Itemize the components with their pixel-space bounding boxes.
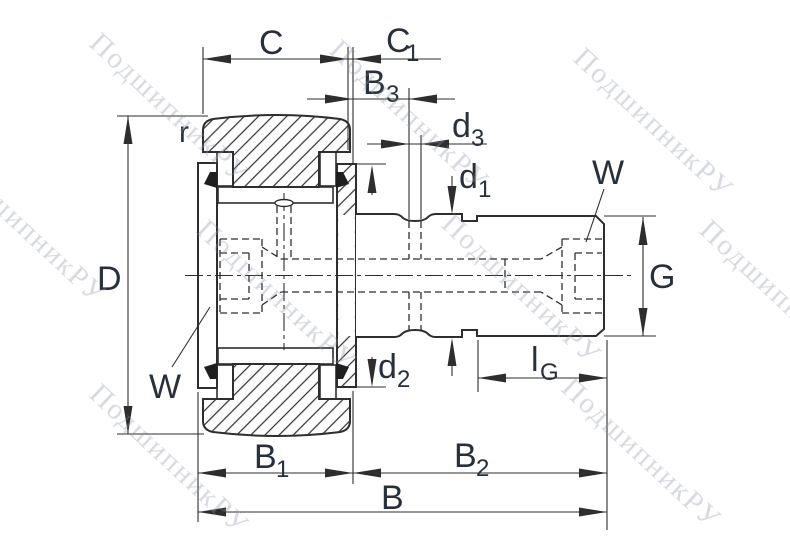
arrowhead <box>478 374 506 383</box>
outer-ring-bottom <box>203 364 350 436</box>
dim-label-g: G <box>649 258 675 296</box>
watermark-text: ПодшипникРУ <box>83 27 255 191</box>
arrowhead <box>639 308 648 336</box>
dim-label-d2: d <box>378 348 397 386</box>
needle-rollers-top <box>218 187 333 203</box>
arrowhead <box>381 140 409 149</box>
watermark-text: ПодшипникРУ <box>693 214 790 378</box>
dim-label-c: C <box>259 24 284 62</box>
dim-label-b1-sub: 1 <box>276 456 289 483</box>
arrowhead <box>639 217 648 245</box>
arrowhead <box>368 165 377 193</box>
lube-hole-opening <box>275 200 293 207</box>
seal-top-right <box>320 152 336 186</box>
arrowhead <box>325 469 353 478</box>
arrowhead <box>579 508 607 517</box>
dim-label-b2: B <box>454 437 477 475</box>
dim-label-b1: B <box>254 438 277 476</box>
dim-label-w-right: W <box>592 154 624 192</box>
bearing-technical-drawing: C C 1 B 3 d 3 d 1 W G l G d 2 D W r B 1 … <box>0 0 790 547</box>
dim-label-b: B <box>381 479 404 517</box>
dim-label-c1-sub: 1 <box>406 40 419 67</box>
arrowhead <box>203 55 231 64</box>
arrowhead <box>325 95 353 104</box>
arrowhead <box>124 116 133 144</box>
drawing-canvas: C C 1 B 3 d 3 d 1 W G l G d 2 D W r B 1 … <box>0 0 790 547</box>
dim-label-lg: l <box>531 341 539 379</box>
dim-label-lg-sub: G <box>540 359 559 386</box>
watermark-text: ПодшипникРУ <box>0 147 113 311</box>
arrowhead <box>579 469 607 478</box>
arrowhead <box>353 469 381 478</box>
arrowhead <box>368 359 377 387</box>
dim-label-w-left: W <box>149 368 181 406</box>
dim-label-b2-sub: 2 <box>476 455 489 482</box>
dim-label-d2-sub: 2 <box>397 366 410 393</box>
seal-bottom-left <box>217 365 233 399</box>
dim-label-d3-sub: 3 <box>471 125 484 152</box>
arrowhead <box>448 338 457 366</box>
